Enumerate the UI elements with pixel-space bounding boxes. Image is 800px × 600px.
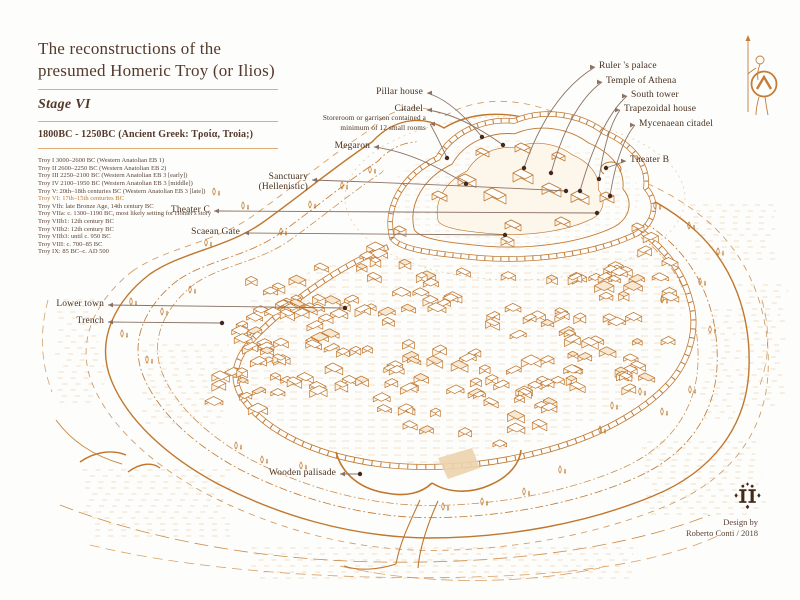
leader-arrow	[622, 94, 627, 99]
leader-line	[108, 322, 222, 323]
iso-building	[408, 357, 421, 364]
bush-icon	[235, 442, 238, 449]
label-sanctuary-line2: (Hellenistic)	[259, 182, 308, 192]
timeline-entry: Troy VIII: c. 700–85 BC	[38, 241, 278, 249]
bush-icon	[528, 491, 530, 495]
label-theater-b: Theater B	[630, 155, 669, 165]
troy-timeline-list: Troy I 3000–2600 BC (Western Anatolian E…	[38, 157, 278, 256]
label-wooden-palisade: Wooden palisade	[269, 468, 336, 478]
timeline-entry: Troy VIIa: c. 1300–1190 BC, most likely …	[38, 210, 278, 218]
lower-town-houses	[205, 232, 679, 447]
leader-dot	[549, 171, 553, 175]
label-citadel: Citadel	[395, 104, 424, 114]
bush-icon	[261, 456, 264, 463]
designer-monogram-icon	[734, 482, 761, 511]
credits-block: Design by Roberto Conti / 2018	[686, 517, 758, 539]
credits-author: Roberto Conti / 2018	[686, 528, 758, 539]
leader-arrow	[108, 303, 113, 308]
bush-icon	[722, 251, 724, 255]
label-rulers-palace: Ruler 's palace	[599, 61, 657, 71]
timeline-entry: Troy IV 2100–1950 BC (Western Anatolian …	[38, 180, 278, 188]
bush-icon	[341, 182, 344, 189]
bush-icon	[639, 388, 642, 395]
bush-icon	[442, 503, 445, 510]
bush-icon	[559, 466, 562, 473]
bush-icon	[694, 389, 696, 393]
greek-warrior-icon	[738, 34, 782, 120]
timeline-entry-highlighted: Troy VI: 17th–15th centuries BC	[38, 195, 278, 203]
bush-icon	[481, 498, 484, 505]
bush-icon	[161, 308, 164, 315]
leader-dot	[464, 182, 468, 186]
label-sanctuary-line1: Sanctuary	[259, 172, 308, 182]
bush-icon	[130, 298, 133, 305]
label-storeroom: Storeroom or garrison contained a minimu…	[323, 114, 426, 133]
leader-dot	[343, 306, 347, 310]
page-title: The reconstructions of the presumed Home…	[38, 38, 278, 81]
bush-icon	[194, 289, 196, 293]
bush-icon	[523, 488, 526, 495]
bush-icon	[369, 166, 372, 173]
bush-icon	[121, 330, 124, 337]
period-label: 1800BC - 1250BC (Ancient Greek: Τροία, T…	[38, 129, 278, 140]
leader-dot	[597, 177, 601, 181]
bush-icon	[309, 201, 312, 208]
label-scaean-gate: Scaean Gate	[191, 227, 240, 237]
divider	[38, 89, 278, 90]
leader-dot	[608, 194, 612, 198]
timeline-entry: Troy II 2600–2250 BC (Western Anatolian …	[38, 165, 278, 173]
bush-icon	[616, 405, 618, 409]
leader-arrow	[630, 123, 635, 128]
credits-design-by: Design by	[686, 517, 758, 528]
label-megaron: Megaron	[335, 141, 370, 151]
iso-building	[252, 387, 265, 394]
label-south-tower: South tower	[631, 90, 679, 100]
leader-arrow	[312, 178, 317, 183]
bush-icon	[151, 359, 153, 363]
leader-dot	[480, 135, 484, 139]
timeline-entry: Troy V: 20th–18th centuries BC (Western …	[38, 188, 278, 196]
timeline-entry: Troy III 2250–2100 BC (Western Anatolian…	[38, 172, 278, 180]
divider	[38, 148, 278, 149]
coast-hatching	[55, 205, 790, 578]
bush-icon	[709, 326, 712, 333]
leader-arrow	[427, 91, 432, 96]
leader-dot	[522, 166, 526, 170]
label-theater-c: Theater C	[171, 205, 210, 215]
label-lower-town: Lower town	[56, 299, 104, 309]
bush-icon	[564, 469, 566, 473]
bush-icon	[659, 205, 661, 209]
label-sanctuary: Sanctuary (Hellenistic)	[259, 172, 308, 192]
iso-building	[506, 366, 521, 373]
title-line2: presumed Homeric Troy (or Ilios)	[38, 61, 275, 80]
label-pillar-house: Pillar house	[376, 87, 423, 97]
title-line1: The reconstructions of the	[38, 39, 221, 58]
timeline-entry: Troy VIIb2: 12th century BC	[38, 226, 278, 234]
bush-icon	[166, 311, 168, 315]
leader-dot	[564, 189, 568, 193]
divider	[38, 121, 278, 122]
bush-icon	[644, 391, 646, 395]
troy-poster: The reconstructions of the presumed Home…	[0, 0, 800, 600]
timeline-entry: Troy VIIb3: until c. 950 BC	[38, 233, 278, 241]
bush-icon	[689, 386, 692, 393]
bush-icon	[666, 411, 668, 415]
bush-icon	[486, 501, 488, 505]
leader-arrow	[427, 108, 432, 113]
citadel-fortress	[345, 114, 685, 280]
label-trench: Trench	[77, 316, 104, 326]
label-storeroom-line1: Storeroom or garrison contained a	[323, 114, 426, 124]
label-trapezoidal-house: Trapezoidal house	[624, 104, 696, 114]
bush-icon	[374, 169, 376, 173]
stage-label: Stage VI	[38, 97, 278, 113]
leader-arrow	[374, 145, 379, 150]
timeline-entry: Troy VIh: late Bronze Age, 14th century …	[38, 203, 278, 211]
iso-building	[205, 397, 223, 406]
bush-icon	[611, 402, 614, 409]
label-temple-of-athena: Temple of Athena	[606, 76, 676, 86]
label-mycenaean-citadel: Mycenaean citadel	[639, 119, 713, 129]
leader-dot	[503, 233, 507, 237]
label-storeroom-line2: minimum of 12 small rooms	[323, 124, 426, 134]
leader-dot	[220, 321, 224, 325]
leader-dot	[595, 211, 599, 215]
bush-icon	[135, 301, 137, 305]
timeline-entry: Troy IX: 85 BC–c. AD 500	[38, 248, 278, 256]
timeline-entry: Troy I 3000–2600 BC (Western Anatolian E…	[38, 157, 278, 165]
leader-dot	[358, 472, 362, 476]
bush-icon	[447, 506, 449, 510]
bush-icon	[126, 333, 128, 337]
bush-icon	[661, 408, 664, 415]
leader-dot	[604, 166, 608, 170]
leader-dot	[501, 143, 505, 147]
leader-dot	[578, 189, 582, 193]
leader-arrow	[340, 472, 345, 477]
bush-icon	[704, 281, 706, 285]
bush-icon	[240, 445, 242, 449]
bush-icon	[189, 286, 192, 293]
header-block: The reconstructions of the presumed Home…	[38, 38, 278, 256]
bush-icon	[266, 459, 268, 463]
timeline-entry: Troy VIIb1: 12th century BC	[38, 218, 278, 226]
bush-icon	[717, 248, 720, 255]
leader-dot	[445, 156, 449, 160]
west-gate	[80, 452, 160, 472]
